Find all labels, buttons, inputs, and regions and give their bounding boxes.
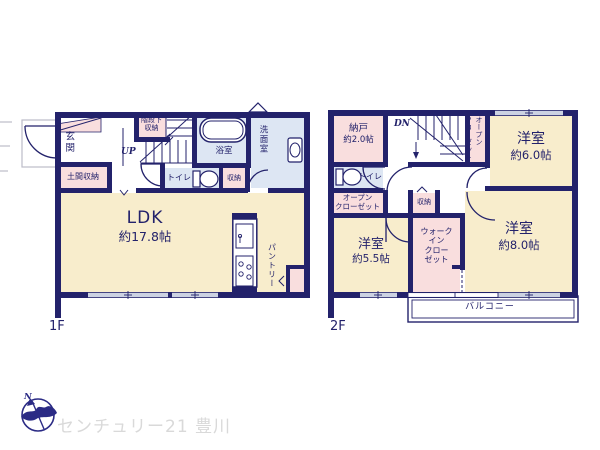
label-wic: ウォーク イン クロー ゼット xyxy=(412,227,461,265)
label-stairs-dn: DN xyxy=(394,119,410,130)
floor2-title: 2F xyxy=(330,319,346,334)
compass-north-label: N xyxy=(24,392,32,402)
brand-watermark: センチュリー21 豊川 xyxy=(57,412,231,437)
label-senmenshitsu: 洗面室 xyxy=(258,125,268,154)
label-pantry: パントリー xyxy=(267,243,276,288)
label-kaidanshita: 階段下 収納 xyxy=(136,116,167,133)
label-toilet-2f: トイレ xyxy=(358,172,382,181)
label-shuno-2f: 収納 xyxy=(411,198,437,206)
roof-vent-mark xyxy=(249,103,267,112)
room-pantry xyxy=(290,269,304,292)
label-shuno-1f: 収納 xyxy=(222,174,246,182)
label-nando: 納戸 約2.0帖 xyxy=(336,123,381,145)
floor1-title: 1F xyxy=(49,319,65,334)
f2-stairs xyxy=(410,114,465,161)
label-yoshitsu8: 洋室 約8.0帖 xyxy=(468,221,570,252)
label-bathroom: 浴室 xyxy=(202,146,246,156)
label-toilet-1f: トイレ xyxy=(167,173,191,182)
toilet-icon-1f xyxy=(193,171,200,187)
f1-porch xyxy=(0,120,57,171)
label-genkan: 玄関 xyxy=(63,131,74,154)
toilet-icon-2f xyxy=(336,169,343,185)
label-ldk: LDK 約17.8帖 xyxy=(85,208,205,245)
floor-plan-canvas: 玄関 土間収納 階段下 収納 UP 浴室 洗面室 トイレ 収納 LDK 約17.… xyxy=(0,0,600,450)
label-yoshitsu55: 洋室 約5.5帖 xyxy=(334,237,408,266)
label-stairs-up: UP xyxy=(121,147,136,158)
balcony-sliding-door xyxy=(408,293,498,298)
porch-outline xyxy=(22,120,57,167)
label-open-closet-right: オープン クローゼット xyxy=(463,116,484,161)
compass-icon xyxy=(21,398,57,431)
label-yoshitsu6: 洋室 約6.0帖 xyxy=(490,131,572,162)
label-balcony: バルコニー xyxy=(430,302,550,313)
label-doma-shuno: 土間収納 xyxy=(58,172,108,181)
label-open-closet-left: オープン クローゼット xyxy=(329,194,386,212)
